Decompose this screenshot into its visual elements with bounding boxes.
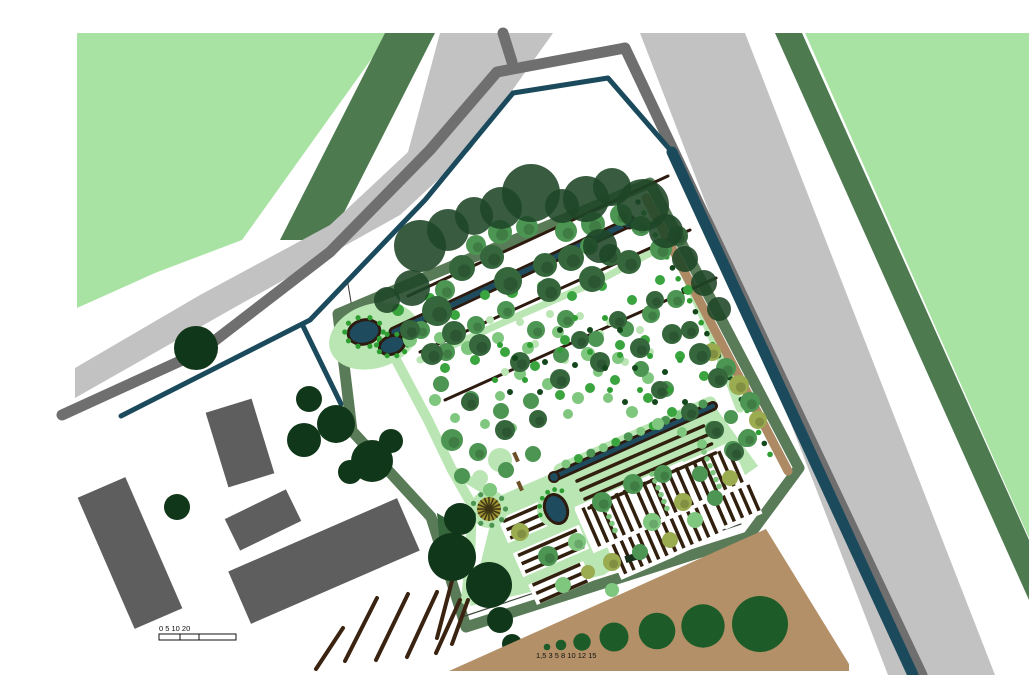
pond-bank-planting xyxy=(377,321,382,326)
pond-bank-planting xyxy=(367,344,372,349)
tree xyxy=(667,407,677,417)
tree xyxy=(557,327,563,333)
tree xyxy=(662,532,678,548)
tree-crown-shade xyxy=(736,382,746,392)
tree xyxy=(652,399,658,405)
tree xyxy=(724,410,738,424)
tree-crown-shade xyxy=(496,229,508,241)
field-furrow-line xyxy=(376,594,408,660)
shrub-dot xyxy=(707,463,713,469)
scale-bar xyxy=(159,634,236,640)
tree xyxy=(637,387,643,393)
tree xyxy=(497,342,503,348)
tree xyxy=(555,577,571,593)
canal-row-tree xyxy=(636,427,645,436)
espalier-dot xyxy=(756,430,762,436)
tree-legend-label: 1,5 3 5 8 10 12 15 xyxy=(536,651,596,660)
tree-crown-shade xyxy=(673,296,682,305)
legend-tree-circle xyxy=(544,644,551,651)
tree xyxy=(687,512,703,528)
legend-tree-circle xyxy=(732,596,788,652)
legend-tree-circle xyxy=(681,604,724,647)
tree xyxy=(581,565,595,579)
pond-bank-planting xyxy=(394,332,399,337)
tree xyxy=(560,335,570,345)
tree-crown-shade xyxy=(545,553,555,563)
tree xyxy=(692,466,708,482)
tree-crown-shade xyxy=(567,254,580,267)
espalier-dot xyxy=(675,276,681,282)
pond-bank-planting xyxy=(385,332,390,337)
tree xyxy=(433,376,449,392)
shrub-dot xyxy=(701,449,707,455)
tree xyxy=(677,427,687,437)
tree xyxy=(707,297,731,321)
tree xyxy=(472,470,488,486)
tree-crown-shade xyxy=(669,331,679,341)
tree xyxy=(454,468,470,484)
shrub-dot xyxy=(612,528,618,534)
tree-crown-shade xyxy=(545,287,557,299)
tree xyxy=(588,331,604,347)
tree-crown-shade xyxy=(687,327,696,336)
tree-crown-shade xyxy=(450,330,462,342)
tree-crown-shade xyxy=(696,351,707,362)
building xyxy=(225,489,301,550)
espalier-dot xyxy=(687,298,693,304)
tree xyxy=(470,355,480,365)
tree xyxy=(632,544,648,560)
tree xyxy=(555,390,565,400)
tree-crown-shade xyxy=(533,327,542,336)
tree-crown-shade xyxy=(407,327,417,337)
tree-crown-shade xyxy=(649,519,658,528)
building xyxy=(206,399,275,488)
tree-crown-shade xyxy=(476,342,487,353)
shrub-dot xyxy=(655,485,661,491)
espalier-dot xyxy=(762,441,768,447)
plaza-tree-dot xyxy=(499,496,504,501)
tree xyxy=(374,287,400,313)
espalier-dot xyxy=(693,309,699,315)
tree xyxy=(450,413,460,423)
solitary-tree xyxy=(317,405,355,443)
tree-crown-shade xyxy=(577,337,586,346)
tree xyxy=(483,483,497,497)
tree xyxy=(492,332,504,344)
tree xyxy=(572,315,578,321)
shrub-dot xyxy=(716,484,722,490)
tree-crown-shade xyxy=(541,262,553,274)
canal-row-tree xyxy=(586,449,595,458)
pond-bank-planting xyxy=(355,344,360,349)
tree xyxy=(627,295,637,305)
espalier-dot xyxy=(698,320,704,326)
canal-row-tree xyxy=(624,432,633,441)
tree xyxy=(610,375,620,385)
tree xyxy=(557,347,563,353)
tree-crown-shade xyxy=(467,399,476,408)
pond-bank-planting xyxy=(346,338,351,343)
tree-crown-shade xyxy=(488,254,500,266)
garden-canal-lower-end xyxy=(549,472,559,482)
tree xyxy=(480,290,490,300)
pond-bank-planting xyxy=(377,336,382,341)
solitary-tree xyxy=(444,503,476,535)
tree xyxy=(530,361,540,371)
pond-bank-planting xyxy=(385,353,390,358)
tree xyxy=(542,359,548,365)
solitary-tree xyxy=(379,429,403,453)
tree xyxy=(617,327,623,333)
pond2-bank-planting xyxy=(540,496,545,501)
canal-row-tree xyxy=(574,454,583,463)
tree-crown-shade xyxy=(562,228,573,239)
tree-crown-shade xyxy=(660,471,669,480)
tree xyxy=(652,418,664,430)
pond-bank-planting xyxy=(342,329,347,334)
tree-crown-shade xyxy=(755,417,764,426)
tree-crown-shade xyxy=(715,375,725,385)
tree-crown-shade xyxy=(652,297,661,306)
canal-row-tree xyxy=(562,460,571,469)
tree-crown-shade xyxy=(448,437,459,448)
tree xyxy=(602,315,608,321)
tree xyxy=(707,490,723,506)
tree xyxy=(525,446,541,462)
pond2-bank-planting xyxy=(538,513,543,518)
tree-crown-shade xyxy=(557,376,567,386)
plaza-tree-dot xyxy=(503,506,508,511)
field-furrow-line xyxy=(316,628,343,669)
pond2-bank-planting xyxy=(559,488,564,493)
tree xyxy=(537,389,543,395)
shrub-dot xyxy=(704,456,710,462)
landscape-masterplan-page: 0 5 10 20 1,5 3 5 8 10 12 15 xyxy=(0,0,1029,675)
pond-bank-planting xyxy=(374,342,379,347)
tree-crown-shade xyxy=(609,559,618,568)
tree xyxy=(585,383,595,393)
pond-bank-planting xyxy=(402,349,407,354)
tree-crown-shade xyxy=(712,427,721,436)
field-furrow-line xyxy=(345,598,377,661)
tree xyxy=(492,377,498,383)
tree xyxy=(516,318,524,326)
tree xyxy=(649,214,683,248)
plaza-tree-dot xyxy=(478,521,483,526)
tree xyxy=(617,352,623,358)
tree xyxy=(691,270,717,296)
tree xyxy=(440,363,450,373)
shrub-dot xyxy=(713,477,719,483)
tree-crown-shade xyxy=(517,529,526,538)
tree-crown-shade xyxy=(428,351,439,362)
tree-crown-shade xyxy=(473,322,482,331)
tree-crown-shade xyxy=(615,317,624,326)
tree-crown-shade xyxy=(458,264,471,277)
tree xyxy=(636,326,644,334)
tree xyxy=(643,393,653,403)
tree xyxy=(493,403,509,419)
tree xyxy=(572,392,584,404)
pond2-bank-planting xyxy=(545,490,550,495)
tree-crown-shade xyxy=(747,399,757,409)
legend-tree-circle xyxy=(600,623,629,652)
tree xyxy=(603,393,613,403)
solitary-tree xyxy=(466,562,512,608)
tree-crown-shade xyxy=(502,427,512,437)
tree xyxy=(632,365,638,371)
tree xyxy=(602,365,608,371)
tree-crown-shade xyxy=(503,307,512,316)
tree xyxy=(607,387,613,393)
legend-tree-circle xyxy=(573,633,590,650)
tree xyxy=(500,347,510,357)
tree-crown-shade xyxy=(574,539,583,548)
plaza-tree-dot xyxy=(478,492,483,497)
shrub-dot xyxy=(658,492,664,498)
plaza-tree-dot xyxy=(489,523,494,528)
pond-bank-planting xyxy=(394,353,399,358)
tree-crown-shade xyxy=(535,416,544,425)
tree-crown-shade xyxy=(504,277,518,291)
shrub-dot xyxy=(609,521,615,527)
pond-bank-planting xyxy=(377,349,382,354)
tree xyxy=(622,399,628,405)
solitary-tree xyxy=(338,460,362,484)
legend-tree-circle xyxy=(556,640,567,651)
solitary-tree xyxy=(487,607,513,633)
shrub-dot xyxy=(710,470,716,476)
tree xyxy=(615,340,625,350)
pond-bank-planting xyxy=(346,321,351,326)
tree xyxy=(672,246,698,272)
tree-crown-shade xyxy=(432,307,447,322)
tree xyxy=(722,470,738,486)
shrub-dot xyxy=(606,514,612,520)
plaza-tree-dot xyxy=(471,501,476,506)
tree xyxy=(563,409,573,419)
pond2-bank-planting xyxy=(552,487,557,492)
tree xyxy=(587,349,593,355)
tree xyxy=(486,316,494,324)
tree xyxy=(605,583,619,597)
tree-crown-shade xyxy=(599,499,609,509)
plan-layers xyxy=(62,33,1029,675)
tree xyxy=(662,369,668,375)
tree-crown-shade xyxy=(745,435,754,444)
tree xyxy=(677,357,683,363)
tree xyxy=(682,399,688,405)
solitary-tree xyxy=(174,326,218,370)
tree xyxy=(546,310,554,318)
tree xyxy=(626,406,638,418)
scale-bar-label: 0 5 10 20 xyxy=(159,624,190,633)
tree-crown-shade xyxy=(473,242,483,252)
espalier-dot xyxy=(704,331,710,337)
tree xyxy=(522,377,528,383)
solitary-tree xyxy=(164,494,190,520)
tree xyxy=(507,389,513,395)
tree-crown-shade xyxy=(517,359,527,369)
tree xyxy=(699,371,709,381)
tree xyxy=(527,342,533,348)
tree-crown-shade xyxy=(443,349,452,358)
tree-crown-shade xyxy=(732,449,741,458)
tree-crown-shade xyxy=(657,387,666,396)
tree-crown-shade xyxy=(442,287,452,297)
tree-crown-shade xyxy=(588,275,601,288)
pond2-bank-planting xyxy=(537,504,542,509)
tree xyxy=(429,394,441,406)
tree-crown-shade xyxy=(523,224,534,235)
tree-crown-shade xyxy=(625,259,637,271)
shrub-dot xyxy=(661,499,667,505)
pond-bank-planting xyxy=(355,315,360,320)
tree xyxy=(587,327,593,333)
tree xyxy=(495,391,505,401)
tree xyxy=(697,439,707,449)
tree xyxy=(583,229,617,263)
shrub-dot xyxy=(649,471,655,477)
tree xyxy=(567,291,577,301)
site-plan-drawing: 0 5 10 20 1,5 3 5 8 10 12 15 xyxy=(0,0,1029,675)
pond-bank-planting xyxy=(367,315,372,320)
tree-crown-shade xyxy=(563,316,572,325)
plaza-tree-dot xyxy=(499,517,504,522)
tree xyxy=(523,393,539,409)
tree xyxy=(501,368,509,376)
legend-tree-circle xyxy=(639,613,676,650)
espalier-dot xyxy=(767,452,773,458)
field-furrow-line xyxy=(407,592,437,657)
solitary-tree xyxy=(428,533,476,581)
tree xyxy=(512,355,518,361)
tree xyxy=(572,362,578,368)
tree xyxy=(655,275,665,285)
tree-crown-shade xyxy=(630,481,640,491)
shrub-dot xyxy=(664,506,670,512)
tree xyxy=(647,353,653,359)
tree-crown-shade xyxy=(680,499,689,508)
tree-crown-shade xyxy=(648,311,657,320)
tree-crown-shade xyxy=(475,449,484,458)
solitary-tree xyxy=(296,386,322,412)
tree xyxy=(480,419,490,429)
canal-row-tree xyxy=(699,400,708,409)
tree xyxy=(498,462,514,478)
canal-row-tree xyxy=(611,438,620,447)
solitary-tree xyxy=(287,423,321,457)
tree xyxy=(667,387,673,393)
tree-crown-shade xyxy=(687,409,696,418)
tree-crown-shade xyxy=(637,345,647,355)
canal-row-tree xyxy=(599,443,608,452)
